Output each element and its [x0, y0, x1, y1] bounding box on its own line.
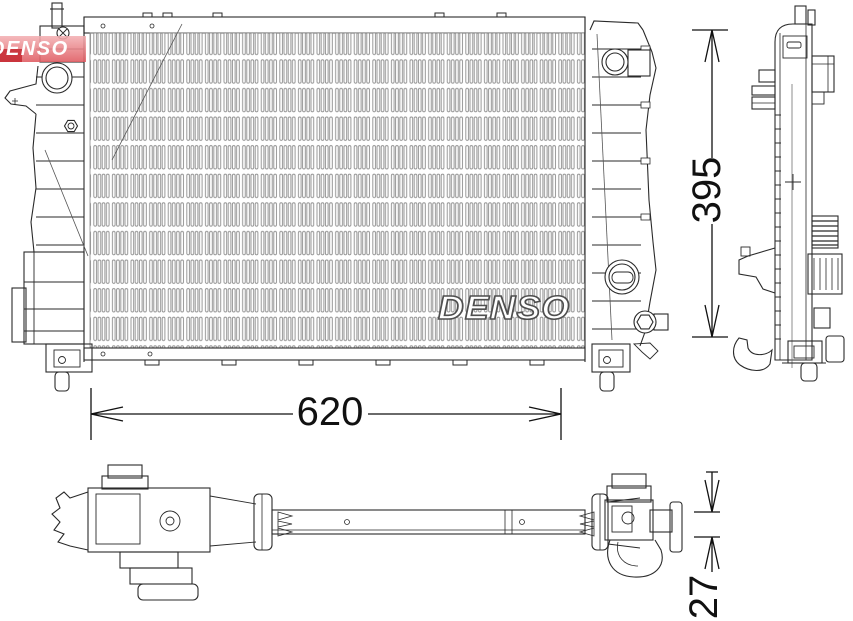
- dim-height-label: 395: [685, 130, 729, 250]
- denso-watermark: DENSO: [438, 289, 589, 331]
- denso-logo: DENSO: [0, 36, 86, 62]
- bottom-left-fitting: [52, 465, 292, 600]
- radiator-side-view: [734, 6, 845, 381]
- filler-cap: [605, 260, 639, 294]
- drawing-canvas: DENSO DENSO 620 395 27: [0, 0, 853, 621]
- drain-plug: [634, 311, 668, 333]
- radiator-bottom-view: [52, 465, 682, 600]
- dim-thickness-label: 27: [682, 537, 726, 621]
- right-tank: [585, 17, 668, 391]
- technical-drawing: [0, 0, 853, 621]
- dim-width-label: 620: [270, 390, 390, 434]
- radiator-front-view: [5, 3, 668, 391]
- denso-logo-text: DENSO: [0, 38, 69, 61]
- bottom-right-fitting: [580, 474, 682, 577]
